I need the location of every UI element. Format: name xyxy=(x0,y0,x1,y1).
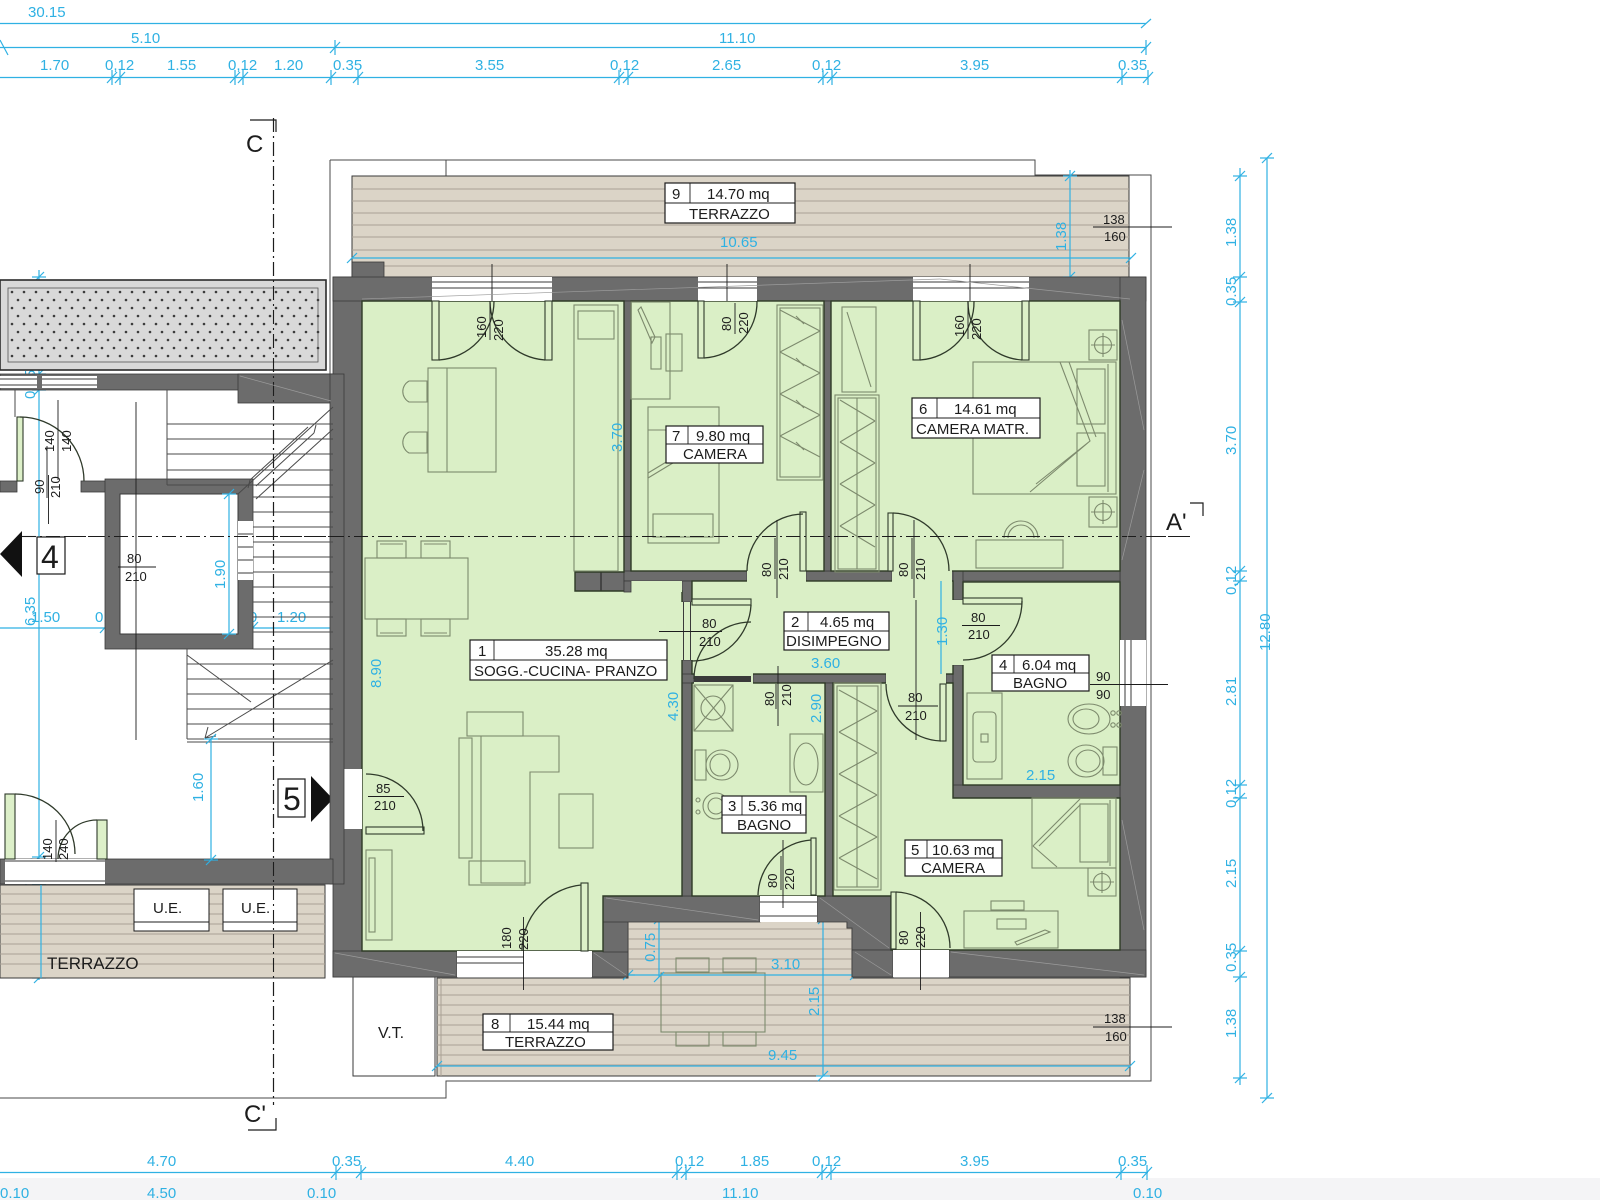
svg-text:TERRAZZO: TERRAZZO xyxy=(505,1034,586,1051)
svg-text:3.55: 3.55 xyxy=(475,57,504,74)
svg-text:80: 80 xyxy=(719,317,734,331)
svg-text:9.80 mq: 9.80 mq xyxy=(696,428,750,445)
svg-text:210: 210 xyxy=(48,476,63,498)
svg-text:0.35: 0.35 xyxy=(1118,1153,1147,1170)
svg-text:80: 80 xyxy=(896,931,911,945)
svg-text:3.10: 3.10 xyxy=(771,956,800,973)
svg-text:80: 80 xyxy=(971,610,985,625)
svg-text:180: 180 xyxy=(499,927,514,949)
svg-text:138: 138 xyxy=(1104,1011,1126,1026)
svg-text:14.61 mq: 14.61 mq xyxy=(954,401,1017,418)
svg-text:138: 138 xyxy=(1103,212,1125,227)
svg-text:BAGNO: BAGNO xyxy=(737,817,791,834)
svg-text:5.10: 5.10 xyxy=(131,30,160,47)
svg-text:U.E.: U.E. xyxy=(241,900,270,917)
svg-text:0.35: 0.35 xyxy=(332,1153,361,1170)
svg-text:80: 80 xyxy=(127,551,141,566)
svg-text:4: 4 xyxy=(999,657,1007,674)
svg-text:2.15: 2.15 xyxy=(806,987,823,1016)
svg-text:V.T.: V.T. xyxy=(378,1025,404,1042)
svg-text:0,12: 0,12 xyxy=(228,57,257,74)
svg-text:TERRAZZO: TERRAZZO xyxy=(689,206,770,223)
svg-text:160: 160 xyxy=(1105,1029,1127,1044)
svg-text:85: 85 xyxy=(376,781,390,796)
svg-text:CAMERA MATR.: CAMERA MATR. xyxy=(916,421,1029,438)
svg-text:2.15: 2.15 xyxy=(1026,767,1055,784)
svg-text:160: 160 xyxy=(1104,229,1126,244)
svg-text:0.75: 0.75 xyxy=(642,933,659,962)
svg-text:4.30: 4.30 xyxy=(665,692,682,721)
svg-text:3.60: 3.60 xyxy=(811,655,840,672)
svg-text:DISIMPEGNO: DISIMPEGNO xyxy=(786,633,882,650)
svg-text:0.10: 0.10 xyxy=(1133,1185,1162,1200)
svg-text:80: 80 xyxy=(759,563,774,577)
svg-text:160: 160 xyxy=(474,316,489,338)
svg-text:6.04 mq: 6.04 mq xyxy=(1022,657,1076,674)
svg-text:U.E.: U.E. xyxy=(153,900,182,917)
svg-text:2.81: 2.81 xyxy=(1223,677,1240,706)
svg-text:1.38: 1.38 xyxy=(1053,222,1070,251)
svg-text:0,12: 0,12 xyxy=(1223,779,1240,808)
svg-text:9.45: 9.45 xyxy=(768,1047,797,1064)
svg-text:TERRAZZO: TERRAZZO xyxy=(47,954,139,973)
svg-text:80: 80 xyxy=(762,692,777,706)
svg-text:0.35: 0.35 xyxy=(1118,57,1147,74)
svg-text:15.44 mq: 15.44 mq xyxy=(527,1016,590,1033)
svg-text:210: 210 xyxy=(968,627,990,642)
svg-text:80: 80 xyxy=(765,874,780,888)
svg-text:5.36 mq: 5.36 mq xyxy=(748,798,802,815)
svg-text:BAGNO: BAGNO xyxy=(1013,675,1067,692)
svg-text:80: 80 xyxy=(896,563,911,577)
svg-text:210: 210 xyxy=(699,634,721,649)
svg-text:0,12: 0,12 xyxy=(105,57,134,74)
svg-text:4.50: 4.50 xyxy=(147,1185,176,1200)
svg-text:1.38: 1.38 xyxy=(1223,1009,1240,1038)
svg-text:4.70: 4.70 xyxy=(147,1153,176,1170)
svg-text:1.90: 1.90 xyxy=(212,560,229,589)
svg-text:1.30: 1.30 xyxy=(934,617,951,646)
svg-text:0,12: 0,12 xyxy=(610,57,639,74)
svg-text:CAMERA: CAMERA xyxy=(683,446,747,463)
svg-text:90: 90 xyxy=(1096,669,1110,684)
svg-text:210: 210 xyxy=(913,558,928,580)
svg-text:10.63 mq: 10.63 mq xyxy=(932,842,995,859)
svg-text:140: 140 xyxy=(59,430,74,452)
svg-text:5: 5 xyxy=(911,842,919,859)
svg-text:0.35: 0.35 xyxy=(1223,943,1240,972)
svg-text:3.70: 3.70 xyxy=(1223,426,1240,455)
svg-text:1.38: 1.38 xyxy=(1223,218,1240,247)
svg-text:3.95: 3.95 xyxy=(960,57,989,74)
svg-text:220: 220 xyxy=(491,319,506,341)
svg-text:2.15: 2.15 xyxy=(1223,859,1240,888)
svg-text:90: 90 xyxy=(32,480,47,494)
svg-text:210: 210 xyxy=(779,684,794,706)
svg-text:220: 220 xyxy=(969,318,984,340)
svg-text:8.90: 8.90 xyxy=(368,659,385,688)
svg-text:210: 210 xyxy=(374,798,396,813)
svg-text:80: 80 xyxy=(702,616,716,631)
svg-text:220: 220 xyxy=(736,312,751,334)
svg-text:9: 9 xyxy=(672,186,680,203)
svg-text:11.10: 11.10 xyxy=(722,1185,758,1200)
svg-text:140: 140 xyxy=(40,838,55,860)
svg-text:35.28 mq: 35.28 mq xyxy=(545,643,608,660)
svg-text:3: 3 xyxy=(728,798,736,815)
svg-text:2.65: 2.65 xyxy=(712,57,741,74)
svg-text:14.70 mq: 14.70 mq xyxy=(707,186,770,203)
svg-text:220: 220 xyxy=(913,926,928,948)
svg-text:1.85: 1.85 xyxy=(740,1153,769,1170)
svg-text:140: 140 xyxy=(42,430,57,452)
svg-text:C': C' xyxy=(244,1101,266,1128)
svg-text:0,12: 0,12 xyxy=(812,1153,841,1170)
svg-text:90: 90 xyxy=(1096,687,1110,702)
svg-text:4.40: 4.40 xyxy=(505,1153,534,1170)
svg-text:12.80: 12.80 xyxy=(1257,613,1274,651)
svg-text:CAMERA: CAMERA xyxy=(921,860,985,877)
svg-text:0.10: 0.10 xyxy=(0,1185,29,1200)
svg-text:1.55: 1.55 xyxy=(167,57,196,74)
svg-text:1.70: 1.70 xyxy=(40,57,69,74)
svg-text:10.65: 10.65 xyxy=(720,234,758,251)
svg-text:220: 220 xyxy=(782,868,797,890)
svg-text:0,12: 0,12 xyxy=(1223,566,1240,595)
svg-text:80: 80 xyxy=(908,690,922,705)
svg-text:SOGG.-CUCINA- PRANZO: SOGG.-CUCINA- PRANZO xyxy=(474,663,657,680)
svg-text:220: 220 xyxy=(516,928,531,950)
svg-text:4.65 mq: 4.65 mq xyxy=(820,614,874,631)
svg-text:2.90: 2.90 xyxy=(808,694,825,723)
svg-text:1.50: 1.50 xyxy=(31,609,60,626)
svg-text:0.35: 0.35 xyxy=(1223,277,1240,306)
svg-text:3.70: 3.70 xyxy=(609,423,626,452)
svg-text:6: 6 xyxy=(919,401,927,418)
svg-text:0,12: 0,12 xyxy=(675,1153,704,1170)
svg-text:3.95: 3.95 xyxy=(960,1153,989,1170)
svg-text:C: C xyxy=(246,131,263,158)
svg-text:1.20: 1.20 xyxy=(274,57,303,74)
svg-text:240: 240 xyxy=(56,838,71,860)
svg-text:0,12: 0,12 xyxy=(812,57,841,74)
svg-text:0.35: 0.35 xyxy=(333,57,362,74)
svg-text:5: 5 xyxy=(283,781,301,817)
svg-text:30.15: 30.15 xyxy=(28,4,66,21)
svg-text:4: 4 xyxy=(41,539,59,575)
svg-text:A': A' xyxy=(1166,509,1187,536)
svg-text:11.10: 11.10 xyxy=(719,30,755,47)
svg-text:0.10: 0.10 xyxy=(307,1185,336,1200)
svg-text:7: 7 xyxy=(672,428,680,445)
svg-text:2: 2 xyxy=(791,614,799,631)
svg-text:160: 160 xyxy=(952,315,967,337)
svg-text:210: 210 xyxy=(776,558,791,580)
svg-text:1.60: 1.60 xyxy=(190,773,207,802)
svg-text:1: 1 xyxy=(478,643,486,660)
svg-text:8: 8 xyxy=(491,1016,499,1033)
